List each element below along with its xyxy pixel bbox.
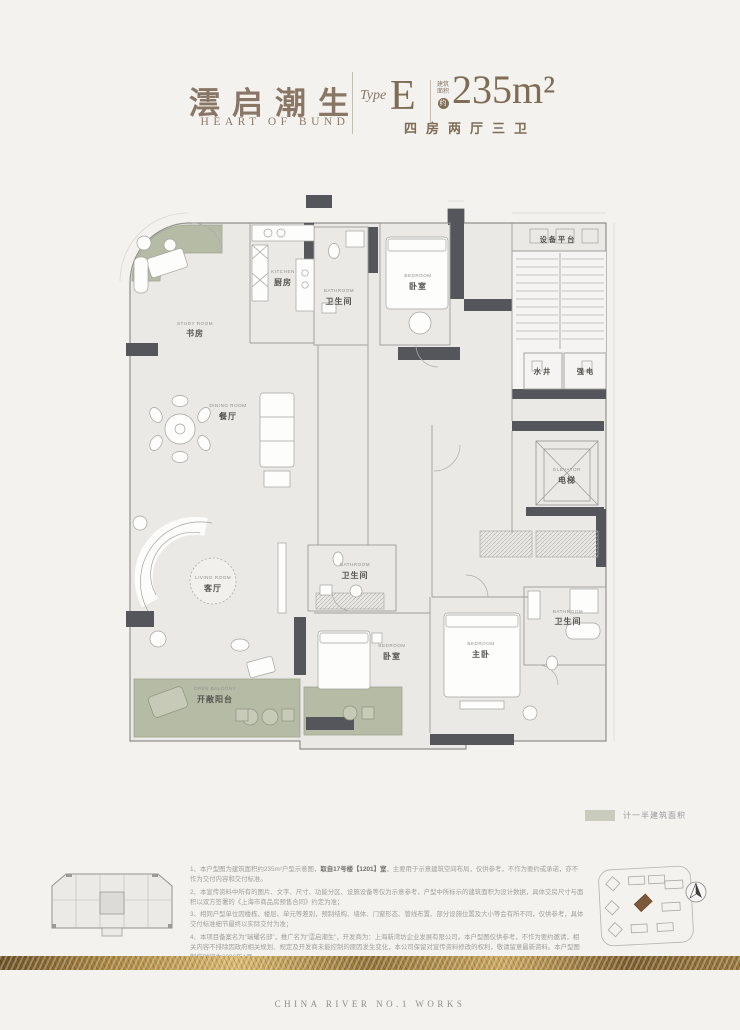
note-3: 3、相同户型单位因楼栋、楼层、单元等差别，预制结构、墙体、门窗形态、管线布置、部… <box>190 910 584 931</box>
room-layout-text: 四房两厅三卫 <box>385 118 555 137</box>
svg-text:STUDY ROOM: STUDY ROOM <box>177 321 213 326</box>
gold-divider-bar <box>0 956 740 970</box>
area-note-line1: 建筑 <box>436 82 450 89</box>
svg-text:LIVING ROOM: LIVING ROOM <box>195 575 231 580</box>
area-value: 235m² <box>452 66 555 113</box>
svg-text:卧室: 卧室 <box>383 651 401 661</box>
svg-text:开敞阳台: 开敞阳台 <box>197 694 233 704</box>
area-note-line2: 面积 <box>436 89 450 96</box>
site-plan <box>594 858 712 958</box>
svg-text:BEDROOM: BEDROOM <box>378 643 405 648</box>
svg-text:强电: 强电 <box>577 367 595 376</box>
legend: 计一半建筑面积 <box>585 810 686 821</box>
room-label-water-well: 水井 <box>533 367 552 376</box>
svg-text:卫生间: 卫生间 <box>342 570 369 580</box>
svg-text:BEDROOM: BEDROOM <box>467 641 494 646</box>
svg-text:书房: 书房 <box>186 328 204 338</box>
svg-text:BATHROOM: BATHROOM <box>340 562 370 567</box>
room-label-equipment-platform: 设备平台 <box>540 235 577 244</box>
svg-text:BEDROOM: BEDROOM <box>404 273 431 278</box>
footer-text: CHINA RIVER NO.1 WORKS <box>0 999 740 1009</box>
header-divider <box>352 72 353 134</box>
legend-label: 计一半建筑面积 <box>623 810 686 821</box>
svg-text:OPEN BALCONY: OPEN BALCONY <box>194 686 236 691</box>
svg-text:KITCHEN: KITCHEN <box>271 269 295 274</box>
svg-text:主卧: 主卧 <box>472 649 490 659</box>
room-label-strong-electric: 强电 <box>577 367 595 376</box>
floor-plan: STUDY ROOM 书房 KITCHEN 厨房 BATHROOM 卫生间 BE… <box>100 193 640 761</box>
building-key-plan <box>42 866 182 954</box>
disclaimer-notes: 1、本户型图为建筑面积约235m²户型示意图，取自17号楼【1201】室，主要用… <box>190 865 584 965</box>
north-arrow-icon <box>686 882 706 902</box>
svg-text:BATHROOM: BATHROOM <box>553 609 583 614</box>
svg-text:卫生间: 卫生间 <box>326 296 353 306</box>
room-label-open-balcony: OPEN BALCONY 开敞阳台 <box>194 686 236 704</box>
room-label-bathroom-top: BATHROOM 卫生间 <box>324 288 354 306</box>
svg-text:设备平台: 设备平台 <box>540 235 577 244</box>
room-label-bathroom-mid: BATHROOM 卫生间 <box>340 562 370 580</box>
svg-text:客厅: 客厅 <box>203 583 222 593</box>
svg-text:卧室: 卧室 <box>409 281 427 291</box>
note-2: 2、本宣传资料中所有的图片、文字、尺寸、功能分区、设施设备等仅为示意参考，户型中… <box>190 888 584 909</box>
svg-text:电梯: 电梯 <box>558 475 576 485</box>
note-1: 1、本户型图为建筑面积约235m²户型示意图，取自17号楼【1201】室，主要用… <box>190 865 584 886</box>
legend-swatch <box>585 810 615 821</box>
type-label: Type <box>360 88 386 104</box>
svg-text:BATHROOM: BATHROOM <box>324 288 354 293</box>
type-value: E <box>390 72 416 120</box>
svg-text:ELEVATOR: ELEVATOR <box>553 467 581 472</box>
room-label-kitchen: KITCHEN 厨房 <box>271 269 295 287</box>
svg-text:餐厅: 餐厅 <box>218 411 237 421</box>
area-note: 建筑 面积 约 <box>436 82 450 109</box>
room-label-bathroom-master: BATHROOM 卫生间 <box>553 609 583 626</box>
svg-text:厨房: 厨房 <box>274 277 292 287</box>
page-subtitle: HEART OF BUND <box>185 116 365 128</box>
area-about-badge: 约 <box>438 98 449 109</box>
svg-text:水井: 水井 <box>533 367 552 376</box>
svg-text:卫生间: 卫生间 <box>555 616 582 626</box>
svg-text:DINING ROOM: DINING ROOM <box>209 403 246 408</box>
